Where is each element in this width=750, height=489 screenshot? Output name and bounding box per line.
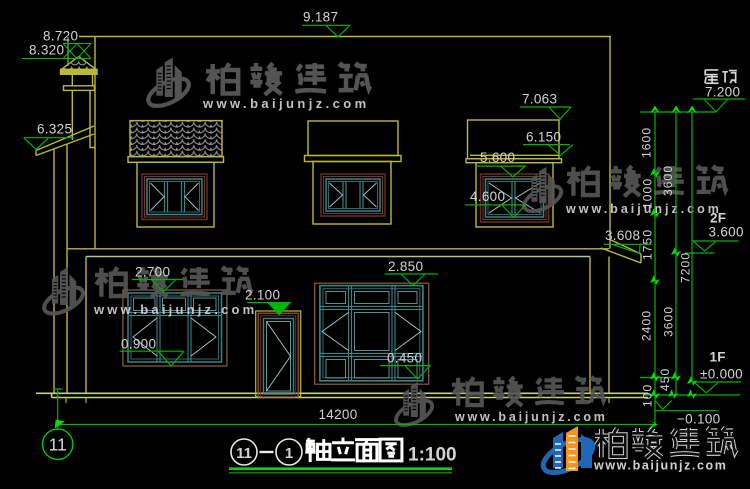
svg-text:1: 1 (285, 445, 293, 462)
svg-text:9.187: 9.187 (303, 10, 338, 25)
svg-text:11: 11 (236, 445, 252, 462)
svg-text:3600: 3600 (661, 165, 675, 196)
svg-text:1750: 1750 (641, 229, 655, 260)
svg-text:4.600: 4.600 (470, 189, 505, 204)
svg-text:450: 450 (658, 368, 672, 391)
svg-text:3.608: 3.608 (605, 228, 640, 243)
svg-text:14200: 14200 (319, 407, 358, 422)
svg-text:2.850: 2.850 (388, 259, 423, 274)
svg-text:2F: 2F (710, 211, 726, 226)
svg-text:7.200: 7.200 (705, 85, 740, 100)
svg-text:100: 100 (641, 384, 655, 407)
svg-text:±0.000: ±0.000 (700, 367, 743, 382)
svg-text:6.325: 6.325 (37, 122, 72, 137)
svg-text:7.063: 7.063 (522, 92, 557, 107)
svg-text:www.baijunjz.com: www.baijunjz.com (454, 410, 608, 424)
svg-text:www.baijunjz.com: www.baijunjz.com (202, 96, 370, 111)
svg-text:7200: 7200 (679, 252, 693, 283)
svg-text:www.baijunjz.com: www.baijunjz.com (93, 302, 257, 317)
svg-text:5.600: 5.600 (480, 150, 515, 165)
svg-text:11: 11 (49, 435, 67, 455)
svg-text:8.320: 8.320 (29, 43, 64, 58)
svg-text:1:100: 1:100 (408, 445, 457, 466)
svg-text:3.600: 3.600 (709, 225, 744, 240)
svg-text:0.450: 0.450 (387, 351, 422, 366)
svg-text:6.150: 6.150 (526, 130, 561, 145)
svg-text:2400: 2400 (640, 310, 654, 341)
svg-text:1F: 1F (710, 350, 726, 365)
svg-text:8.720: 8.720 (43, 29, 78, 44)
svg-text:1600: 1600 (640, 127, 654, 158)
svg-text:2.100: 2.100 (245, 288, 280, 303)
svg-text:www.baijunjz.com: www.baijunjz.com (593, 459, 727, 473)
svg-text:3600: 3600 (662, 306, 676, 337)
svg-text:2.700: 2.700 (135, 265, 170, 280)
svg-text:−0.100: −0.100 (677, 412, 720, 427)
svg-text:1000: 1000 (641, 178, 655, 209)
svg-text:0.900: 0.900 (121, 337, 156, 352)
